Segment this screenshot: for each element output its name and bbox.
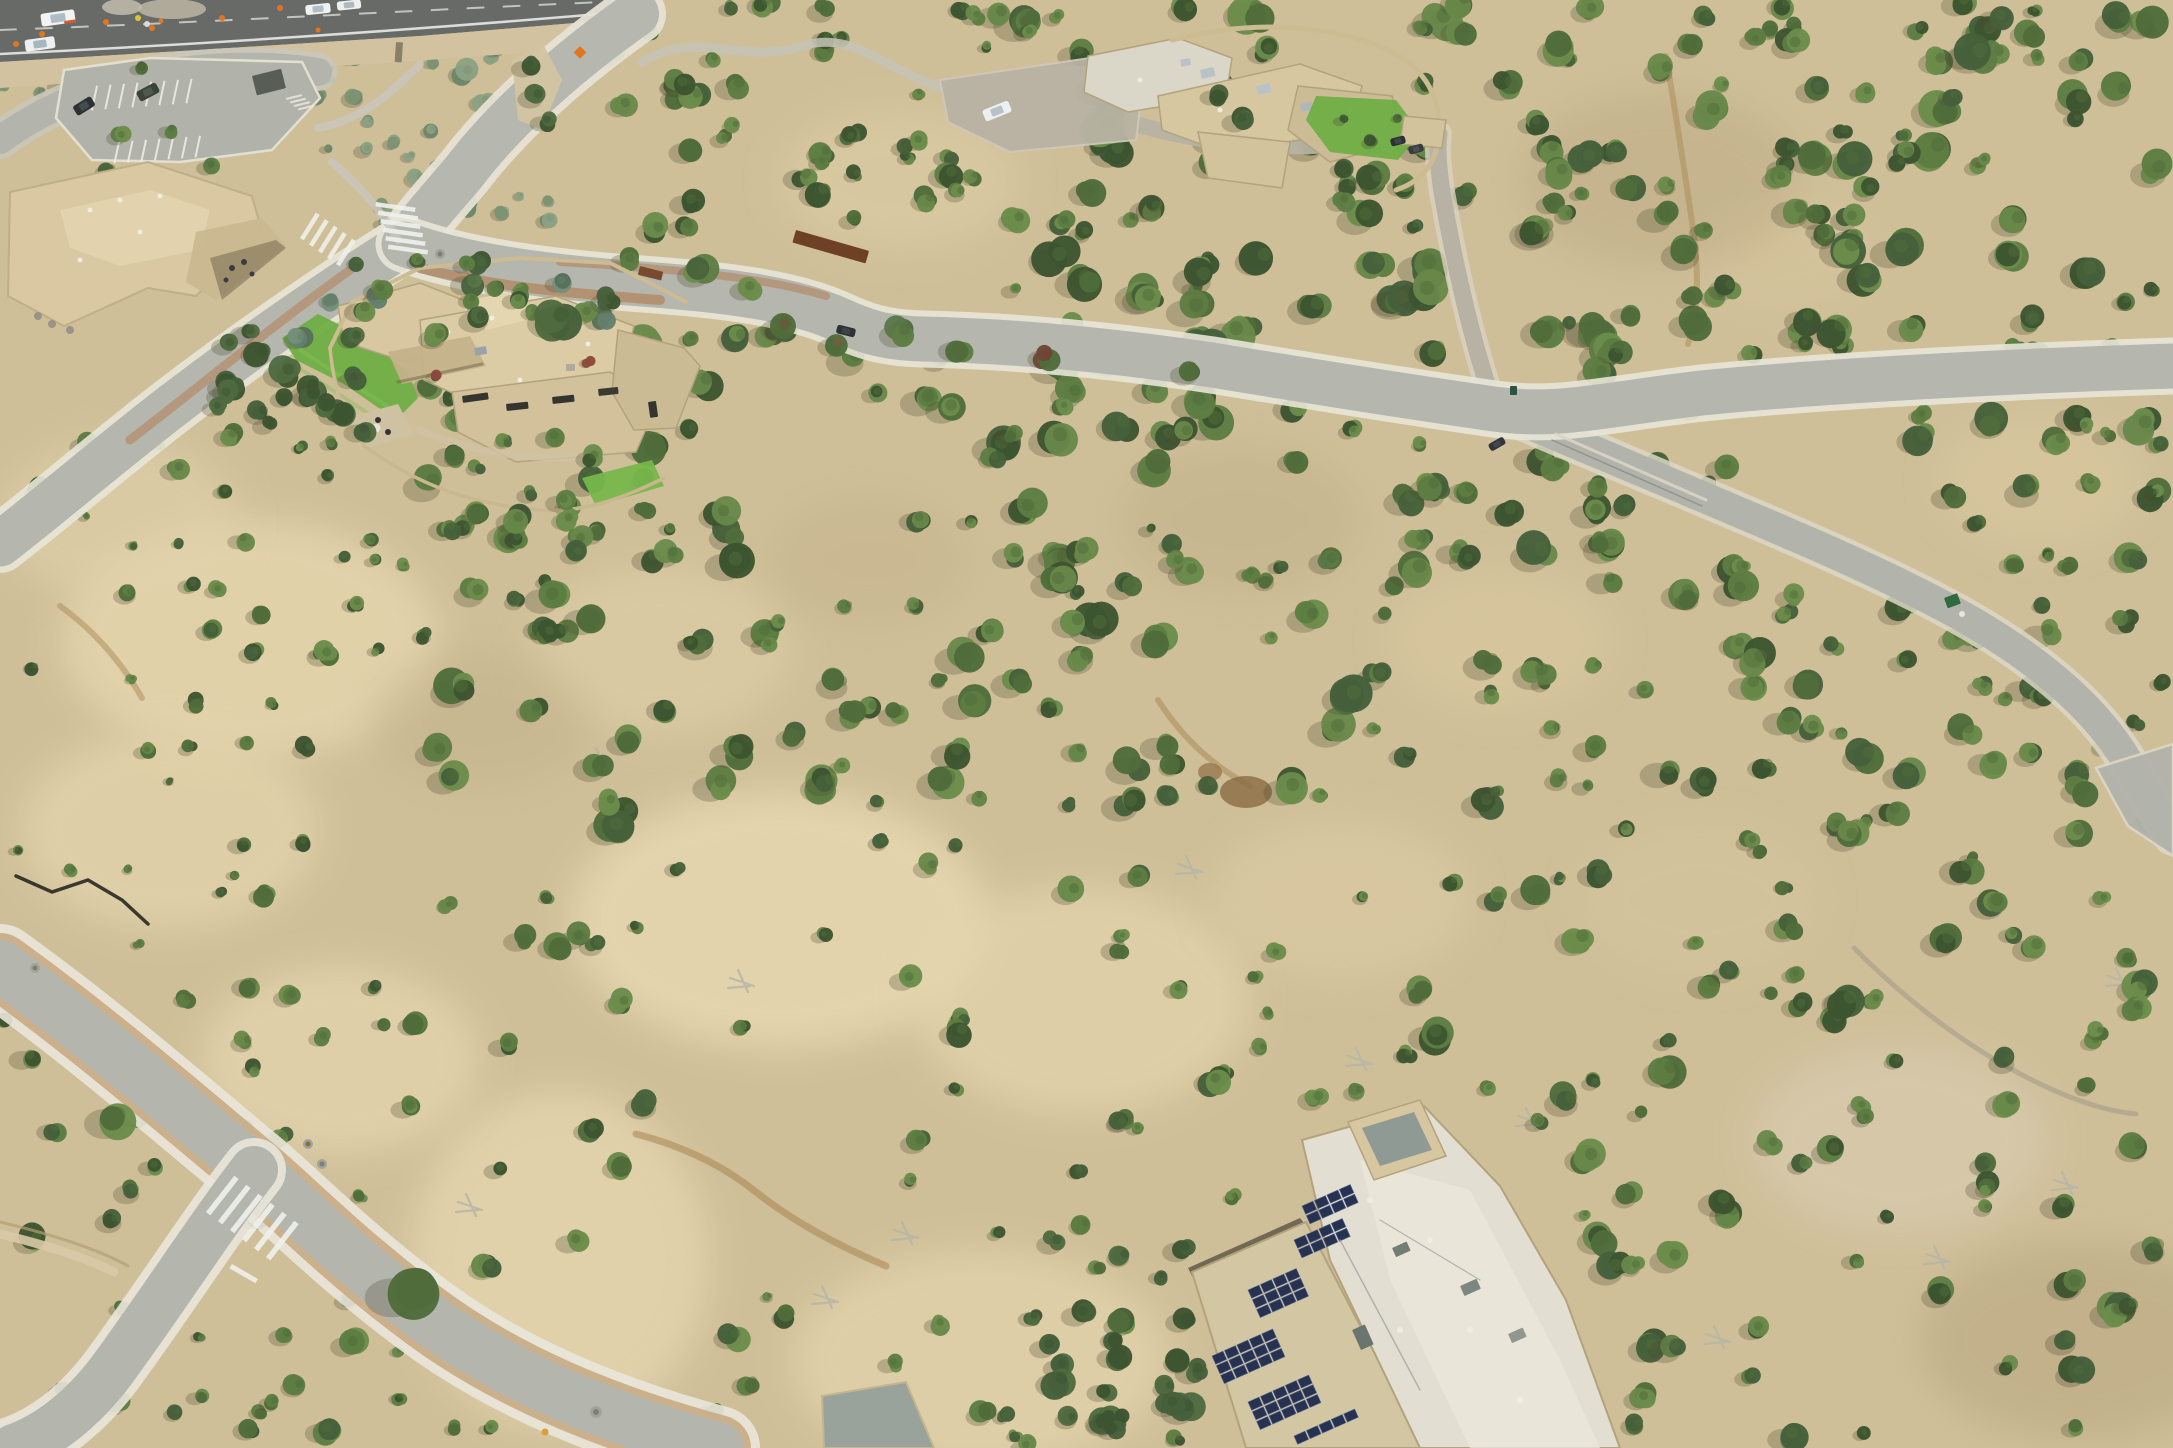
visitor-center-patio-furniture bbox=[78, 258, 83, 263]
shrub-highlight bbox=[574, 931, 583, 940]
manhole-inner bbox=[438, 252, 443, 257]
shrub-highlight bbox=[1718, 1192, 1730, 1204]
shrub-highlight bbox=[648, 432, 662, 446]
shrub-highlight bbox=[2083, 261, 2097, 275]
shrub-highlight bbox=[1105, 1415, 1111, 1421]
shrub-highlight bbox=[939, 676, 945, 682]
aerial-photo-stage bbox=[0, 0, 2173, 1448]
shrub-highlight bbox=[1950, 91, 1957, 98]
shrub-highlight bbox=[127, 587, 135, 595]
shrub-highlight bbox=[839, 761, 845, 767]
shrub-highlight bbox=[2100, 893, 2107, 900]
shrub-highlight bbox=[2129, 549, 2141, 561]
shrub-highlight bbox=[676, 863, 683, 870]
shrub-highlight bbox=[247, 978, 256, 987]
shrub-highlight bbox=[1117, 415, 1129, 427]
shrub-highlight bbox=[300, 838, 306, 844]
shrub-highlight bbox=[454, 679, 468, 693]
fire-hydrant bbox=[542, 1429, 549, 1436]
shrub-highlight bbox=[1464, 553, 1473, 562]
shrub-highlight bbox=[594, 756, 606, 768]
shrub-highlight bbox=[543, 115, 551, 123]
shrub-highlight bbox=[1984, 1203, 1990, 1209]
shrub-highlight bbox=[941, 770, 955, 784]
estate-patio-furniture bbox=[375, 417, 381, 423]
shrub-highlight bbox=[946, 166, 957, 177]
shrub-highlight bbox=[748, 1376, 757, 1385]
shrub-highlight bbox=[325, 146, 329, 150]
shrub-highlight bbox=[1260, 1043, 1266, 1049]
shrub-highlight bbox=[1462, 186, 1474, 198]
shrub-highlight bbox=[1166, 1381, 1174, 1389]
shrub-highlight bbox=[1429, 1025, 1441, 1037]
shrub-highlight bbox=[1319, 789, 1325, 795]
shrub-highlight bbox=[1704, 11, 1712, 19]
shrub-highlight bbox=[1404, 748, 1413, 757]
shrub-highlight bbox=[996, 5, 1007, 16]
shrub-highlight bbox=[1894, 1056, 1900, 1062]
shrub-canopy bbox=[1206, 1070, 1231, 1095]
shrub-highlight bbox=[1270, 633, 1276, 639]
shrub-highlight bbox=[2043, 599, 2050, 606]
shrub-highlight bbox=[689, 334, 695, 340]
shrub-highlight bbox=[1847, 211, 1857, 221]
shrub-highlight bbox=[2078, 782, 2088, 792]
shrub-highlight bbox=[469, 294, 476, 301]
shrub-highlight bbox=[1560, 39, 1573, 52]
shrub-highlight bbox=[1787, 143, 1795, 151]
shrub-highlight bbox=[964, 693, 977, 706]
shrub-highlight bbox=[1751, 348, 1759, 356]
shrub-highlight bbox=[1532, 116, 1540, 124]
fire-hydrant bbox=[542, 1429, 549, 1436]
shrub-highlight bbox=[846, 601, 853, 608]
shrub-highlight bbox=[711, 53, 718, 60]
shrub-highlight bbox=[1583, 149, 1595, 161]
shrub-highlight bbox=[472, 584, 483, 595]
shrub-highlight bbox=[1072, 613, 1084, 625]
sand-light-patches bbox=[1580, 825, 1820, 975]
shrub-highlight bbox=[1052, 572, 1065, 585]
shrub-highlight bbox=[297, 332, 305, 340]
shrub-highlight bbox=[926, 193, 935, 202]
shrub-highlight bbox=[248, 1422, 257, 1431]
shrub-highlight bbox=[1493, 786, 1500, 793]
shrub-highlight bbox=[729, 526, 741, 538]
shrub-highlight bbox=[1763, 759, 1772, 768]
visitor-center-boulders bbox=[34, 312, 42, 320]
shrub-highlight bbox=[733, 121, 739, 127]
shrub-highlight bbox=[1093, 615, 1107, 629]
shrub-highlight bbox=[1550, 196, 1558, 204]
shrub-highlight bbox=[168, 126, 174, 132]
shrub-highlight bbox=[1845, 236, 1860, 251]
shrub-highlight bbox=[487, 1424, 492, 1429]
shrub-highlight bbox=[1664, 1060, 1677, 1073]
shrub-highlight bbox=[1596, 533, 1606, 543]
shrub-highlight bbox=[1917, 428, 1929, 440]
shrub-highlight bbox=[413, 1017, 422, 1026]
shrub-highlight bbox=[174, 1408, 181, 1415]
shrub-highlight bbox=[399, 1275, 419, 1295]
shrub-highlight bbox=[794, 728, 805, 739]
shrub-highlight bbox=[1043, 349, 1052, 358]
scene-root bbox=[0, 0, 2173, 1448]
shrub-highlight bbox=[477, 258, 485, 266]
shrub-highlight bbox=[1356, 1086, 1364, 1094]
shrub-highlight bbox=[1174, 555, 1183, 564]
shrub-highlight bbox=[356, 258, 362, 264]
shrub-highlight bbox=[1749, 835, 1757, 843]
shrub-highlight bbox=[209, 624, 217, 632]
shrub-highlight bbox=[1748, 676, 1759, 687]
shrub-highlight bbox=[1011, 546, 1022, 557]
shrub-highlight bbox=[177, 540, 181, 544]
shrub-highlight bbox=[1114, 1332, 1122, 1340]
shrub-highlight bbox=[2059, 1196, 2070, 1207]
shrub-highlight bbox=[823, 2, 833, 12]
shrub-highlight bbox=[445, 520, 455, 530]
shrub-highlight bbox=[818, 183, 829, 194]
shrub-highlight bbox=[1901, 656, 1909, 664]
shrub-highlight bbox=[548, 198, 552, 202]
shrub-highlight bbox=[1314, 1091, 1323, 1100]
shrub-highlight bbox=[2029, 24, 2040, 35]
shrub-highlight bbox=[1559, 773, 1568, 782]
shrub-highlight bbox=[2065, 563, 2072, 570]
shrub-highlight bbox=[2076, 91, 2088, 103]
shrub-highlight bbox=[1373, 254, 1384, 265]
shrub-highlight bbox=[1806, 672, 1819, 685]
shrub-highlight bbox=[683, 219, 692, 228]
shrub-highlight bbox=[1863, 1113, 1870, 1120]
shrub-highlight bbox=[1074, 46, 1084, 56]
shrub-highlight bbox=[1056, 1372, 1068, 1384]
shrub-highlight bbox=[819, 157, 825, 163]
shrub-highlight bbox=[1420, 440, 1426, 446]
shrub-highlight bbox=[895, 706, 905, 716]
shrub-highlight bbox=[1667, 179, 1675, 187]
shrub-canopy bbox=[540, 892, 552, 904]
shrub-highlight bbox=[928, 860, 937, 869]
shrub-highlight bbox=[1596, 366, 1607, 377]
highway-vehicles-cabin bbox=[312, 5, 324, 13]
shrub-highlight bbox=[1794, 199, 1808, 213]
shrub-highlight bbox=[435, 329, 445, 339]
shrub-highlight bbox=[240, 838, 248, 846]
shrub-highlight bbox=[951, 743, 963, 755]
manhole-inner bbox=[306, 1142, 311, 1147]
shrub-highlight bbox=[1053, 427, 1067, 441]
shrub-highlight bbox=[15, 847, 19, 851]
shrub-highlight bbox=[1996, 10, 2007, 21]
shrub-highlight bbox=[1232, 1193, 1237, 1198]
shrub-highlight bbox=[768, 1293, 773, 1298]
shrub-highlight bbox=[272, 701, 276, 705]
shrub-highlight bbox=[2122, 614, 2132, 624]
shrub-highlight bbox=[355, 91, 363, 99]
shrub-highlight bbox=[1172, 538, 1180, 546]
shrub-highlight bbox=[1754, 650, 1767, 663]
shrub-highlight bbox=[430, 126, 436, 132]
shrub-highlight bbox=[973, 11, 980, 18]
shrub-highlight bbox=[406, 1100, 415, 1109]
shrub-highlight bbox=[1629, 176, 1640, 187]
shrub-highlight bbox=[330, 295, 337, 302]
shrub-highlight bbox=[1790, 37, 1801, 48]
shrub-highlight bbox=[354, 598, 361, 605]
shrub-highlight bbox=[555, 938, 565, 948]
shrub-highlight bbox=[1632, 1260, 1640, 1268]
shrub-highlight bbox=[1148, 526, 1154, 532]
shrub-canopy bbox=[1417, 476, 1442, 501]
shrub-highlight bbox=[1058, 1359, 1067, 1368]
shrub-highlight bbox=[1266, 575, 1274, 583]
shrub-highlight bbox=[687, 141, 698, 152]
shrub-highlight bbox=[1026, 27, 1033, 34]
shrub-highlight bbox=[1723, 81, 1729, 87]
shrub-highlight bbox=[2048, 552, 2053, 557]
shrub-highlight bbox=[496, 282, 503, 289]
shrub-highlight bbox=[51, 1123, 59, 1131]
visitor-center-patio-furniture bbox=[88, 208, 93, 213]
shrub-highlight bbox=[916, 1135, 925, 1144]
utility-dot bbox=[1959, 611, 1965, 617]
shrub-highlight bbox=[447, 769, 459, 781]
shrub-highlight bbox=[244, 1036, 252, 1044]
shrub-canopy bbox=[556, 511, 577, 532]
shrub-highlight bbox=[1197, 267, 1211, 281]
shrub-highlight bbox=[2085, 1083, 2091, 1089]
shrub-highlight bbox=[118, 131, 125, 138]
shrub-highlight bbox=[1566, 210, 1573, 217]
shrub-highlight bbox=[545, 626, 554, 635]
shrub-highlight bbox=[300, 444, 305, 449]
shrub-canopy bbox=[989, 451, 1006, 468]
shrub-highlight bbox=[1536, 1118, 1543, 1125]
shrub-highlight bbox=[874, 388, 881, 395]
shrub-highlight bbox=[625, 253, 634, 262]
shrub-highlight bbox=[734, 77, 745, 88]
shrub-highlight bbox=[184, 994, 190, 1000]
shrub-highlight bbox=[1614, 344, 1624, 354]
shrub-highlight bbox=[1465, 482, 1475, 492]
shrub-highlight bbox=[1902, 765, 1914, 777]
shrub-highlight bbox=[1176, 1434, 1182, 1440]
shrub-highlight bbox=[2029, 748, 2038, 757]
shrub-highlight bbox=[1014, 1432, 1019, 1437]
shrub-highlight bbox=[2153, 160, 2166, 173]
shrub-highlight bbox=[582, 306, 591, 315]
shrub-highlight bbox=[1557, 164, 1568, 175]
shrub-highlight bbox=[550, 430, 559, 439]
shrub-highlight bbox=[197, 1392, 203, 1398]
shrub-highlight bbox=[904, 972, 913, 981]
visitor-center-boulders bbox=[48, 320, 56, 328]
shrub-highlight bbox=[1980, 680, 1988, 688]
shrub-highlight bbox=[2031, 938, 2042, 949]
shrub-highlight bbox=[240, 534, 247, 541]
shrub-highlight bbox=[1347, 685, 1361, 699]
shrub-highlight bbox=[1949, 487, 1960, 498]
shrub-highlight bbox=[936, 1318, 943, 1325]
shrub-highlight bbox=[144, 746, 150, 752]
shrub-highlight bbox=[1372, 725, 1378, 731]
shrub-highlight bbox=[359, 423, 368, 432]
shrub-highlight bbox=[25, 1050, 35, 1060]
shrub-highlight bbox=[477, 505, 486, 514]
shrub-highlight bbox=[85, 514, 89, 518]
shrub-highlight bbox=[252, 647, 260, 655]
shrub-highlight bbox=[1814, 210, 1823, 219]
shrub-highlight bbox=[585, 608, 598, 621]
shrub-highlight bbox=[1627, 1190, 1636, 1199]
shrub-highlight bbox=[1662, 761, 1675, 774]
shrub-highlight bbox=[731, 1328, 741, 1338]
shrub-highlight bbox=[1153, 458, 1166, 471]
shrub-highlight bbox=[1777, 171, 1786, 180]
shrub-highlight bbox=[1703, 224, 1711, 232]
shrub-highlight bbox=[1372, 171, 1383, 182]
shrub-highlight bbox=[1124, 793, 1137, 806]
shrub-highlight bbox=[322, 1422, 332, 1432]
shrub-highlight bbox=[1417, 985, 1427, 995]
shrub-highlight bbox=[253, 1064, 259, 1070]
shrub-highlight bbox=[1783, 882, 1789, 888]
shrub-highlight bbox=[785, 1310, 793, 1318]
shrub-highlight bbox=[434, 743, 445, 754]
shrub-highlight bbox=[496, 1163, 504, 1171]
shrub-highlight bbox=[1278, 561, 1284, 567]
shrub-highlight bbox=[1268, 1010, 1273, 1015]
shrub-highlight bbox=[594, 938, 603, 947]
shrub-highlight bbox=[2117, 82, 2129, 94]
shrub-highlight bbox=[233, 871, 237, 875]
shrub-highlight bbox=[515, 294, 522, 301]
shrub-highlight bbox=[686, 194, 696, 204]
shrub-highlight bbox=[463, 261, 469, 267]
shrub-highlight bbox=[1936, 53, 1946, 63]
shrub-highlight bbox=[137, 941, 141, 945]
shrub-highlight bbox=[946, 151, 954, 159]
estate-roof-vents bbox=[518, 378, 523, 383]
shrub-highlight bbox=[1699, 776, 1710, 787]
estate-windows bbox=[566, 364, 575, 371]
shrub-highlight bbox=[1008, 428, 1016, 436]
shrub-highlight bbox=[1362, 893, 1368, 899]
shrub-highlight bbox=[956, 842, 961, 847]
shrub-highlight bbox=[1208, 778, 1216, 786]
shrub-highlight bbox=[1080, 648, 1093, 661]
shrub-highlight bbox=[915, 135, 922, 142]
standing-stone bbox=[395, 42, 403, 62]
shrub-highlight bbox=[985, 43, 990, 48]
shrub-highlight bbox=[502, 207, 509, 214]
shrub-highlight bbox=[668, 524, 674, 530]
shrub-highlight bbox=[1725, 279, 1735, 289]
shrub-highlight bbox=[701, 373, 713, 385]
shrub-highlight bbox=[847, 132, 854, 139]
shrub-highlight bbox=[454, 1424, 460, 1430]
shrub-highlight bbox=[1069, 385, 1080, 396]
shrub-highlight bbox=[2152, 286, 2157, 291]
shrub-highlight bbox=[1159, 1272, 1165, 1278]
manhole-inner bbox=[33, 966, 38, 971]
shrub-highlight bbox=[590, 451, 598, 459]
shrub-highlight bbox=[976, 792, 982, 798]
shrub-highlight bbox=[1786, 917, 1798, 929]
shrub-highlight bbox=[2160, 678, 2167, 685]
shrub-highlight bbox=[1685, 242, 1699, 256]
shrub-highlight bbox=[1800, 1159, 1807, 1166]
shrub-highlight bbox=[529, 489, 536, 496]
shrub-highlight bbox=[1383, 611, 1389, 617]
sand-light-patches bbox=[1390, 570, 1610, 710]
shrub-highlight bbox=[1863, 746, 1875, 758]
shrub-highlight bbox=[1769, 1137, 1778, 1146]
shrub-highlight bbox=[1487, 689, 1494, 696]
shrub-highlight bbox=[1014, 212, 1024, 222]
shrub-highlight bbox=[220, 889, 225, 894]
shrub-highlight bbox=[369, 537, 375, 543]
shrub-highlight bbox=[880, 836, 887, 843]
shrub-highlight bbox=[2005, 1054, 2015, 1064]
shrub-highlight bbox=[607, 795, 615, 803]
shrub-highlight bbox=[1054, 12, 1061, 19]
estate-roof-vents bbox=[490, 316, 495, 321]
sand-shade-patches bbox=[770, 495, 970, 625]
shrub-highlight bbox=[663, 700, 673, 710]
shrub-highlight bbox=[485, 1260, 495, 1270]
shrub-highlight bbox=[730, 742, 742, 754]
shrub-highlight bbox=[295, 1379, 304, 1388]
shrub-highlight bbox=[424, 630, 431, 637]
shrub-highlight bbox=[1784, 607, 1792, 615]
shrub-highlight bbox=[228, 429, 236, 437]
shrub-highlight bbox=[1981, 156, 1987, 162]
shrub-highlight bbox=[1349, 425, 1356, 432]
shrub-highlight bbox=[1624, 307, 1632, 315]
shrub-highlight bbox=[360, 302, 369, 311]
traffic-cones bbox=[219, 15, 225, 21]
sand-light-patches bbox=[1210, 820, 1470, 980]
shrub-highlight bbox=[463, 66, 472, 75]
shrub-highlight bbox=[958, 646, 972, 660]
shrub-highlight bbox=[2026, 481, 2039, 494]
shrub-highlight bbox=[1082, 227, 1090, 235]
shrub-highlight bbox=[1583, 781, 1590, 788]
shrub-highlight bbox=[718, 505, 729, 516]
shrub-highlight bbox=[1433, 341, 1444, 352]
shrub-highlight bbox=[263, 888, 271, 896]
shrub-highlight bbox=[890, 1358, 897, 1365]
shrub-highlight bbox=[1082, 1219, 1090, 1227]
shrub-highlight bbox=[1786, 1427, 1797, 1438]
shrub-highlight bbox=[2128, 1299, 2136, 1307]
shrub-highlight bbox=[729, 552, 743, 566]
shrub-highlight bbox=[678, 77, 688, 87]
shrub-highlight bbox=[730, 3, 737, 10]
utility-dot bbox=[1959, 611, 1965, 617]
shrub-highlight bbox=[1133, 871, 1141, 879]
visitor-center-patio-furniture bbox=[158, 194, 163, 199]
shrub-highlight bbox=[1811, 146, 1824, 159]
shrub-highlight bbox=[110, 1107, 125, 1122]
shrub-highlight bbox=[1185, 2, 1195, 12]
shrub-highlight bbox=[1143, 289, 1155, 301]
shrub-highlight bbox=[1991, 893, 2003, 905]
shrub-highlight bbox=[1834, 317, 1848, 331]
